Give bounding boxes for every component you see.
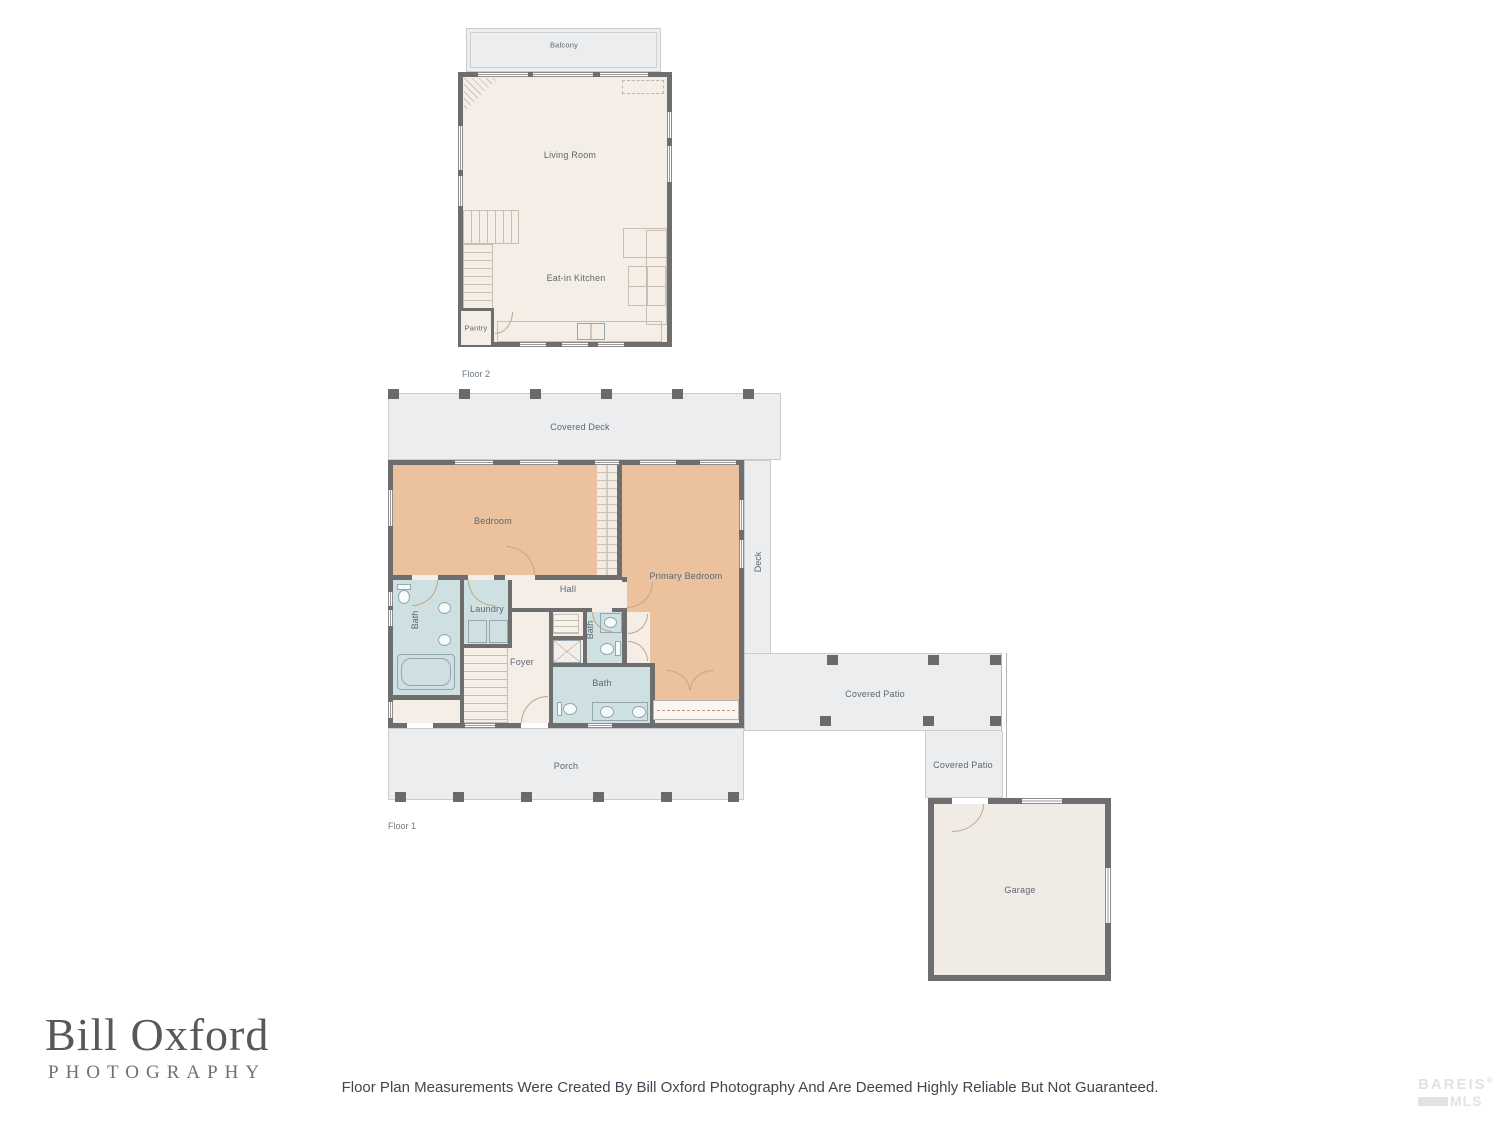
closet-x-icon	[553, 640, 581, 663]
disclaimer-text: Floor Plan Measurements Were Created By …	[0, 1079, 1500, 1096]
post	[388, 389, 399, 399]
window	[520, 460, 558, 465]
primary-bedroom-area	[650, 645, 739, 700]
window	[1022, 798, 1062, 804]
room-label-bath-main: Bath	[592, 678, 611, 688]
post	[923, 716, 934, 726]
window	[739, 500, 744, 530]
post	[820, 716, 831, 726]
window	[388, 702, 393, 718]
closet-rod	[657, 710, 735, 711]
post	[459, 389, 470, 399]
room-label-bedroom: Bedroom	[474, 516, 512, 526]
room-label-hall: Hall	[560, 584, 576, 594]
mls-logo-line1: BAREIS®	[1418, 1077, 1495, 1092]
mls-logo-mls-text: MLS	[1450, 1094, 1483, 1108]
room-label-bath-small: Bath	[585, 621, 595, 640]
room-label-garage: Garage	[1004, 885, 1035, 895]
room-label-porch: Porch	[554, 761, 579, 771]
window	[388, 592, 393, 606]
closet-strip	[653, 700, 739, 720]
stove-icon	[628, 266, 666, 306]
sliding-door	[595, 460, 619, 465]
room-label-covered-patio-lower: Covered Patio	[933, 760, 993, 770]
mls-logo-line2: MLS	[1418, 1094, 1495, 1108]
wall	[393, 695, 460, 700]
photographer-logo-name: Bill Oxford	[45, 1008, 269, 1061]
floor1-label: Floor 1	[388, 821, 416, 831]
mls-registered-mark: ®	[1487, 1076, 1495, 1085]
foyer-staircase	[464, 648, 508, 723]
wall	[508, 580, 512, 644]
window	[667, 146, 672, 182]
window	[739, 540, 744, 568]
window	[700, 460, 736, 465]
primary-bedroom-area	[622, 465, 739, 577]
room-label-pantry: Pantry	[465, 324, 488, 333]
staircase-corridor	[597, 465, 617, 577]
washer-icon	[468, 620, 487, 643]
bareis-mls-logo: BAREIS® MLS	[1418, 1077, 1495, 1108]
window	[598, 342, 624, 347]
dryer-icon	[489, 620, 508, 643]
sink-icon	[438, 634, 451, 646]
room-label-balcony: Balcony	[550, 41, 578, 50]
ceiling-feature-dashed	[622, 80, 664, 94]
sink-icon	[632, 706, 646, 718]
post	[990, 716, 1001, 726]
room-label-deck: Deck	[753, 552, 763, 573]
toilet-icon	[557, 702, 562, 716]
refrigerator-icon	[623, 228, 667, 258]
floorplan-canvas: Balcony Living Room Eat-in Kitchen Pantr…	[0, 0, 1500, 1125]
sliding-door	[533, 72, 593, 77]
window	[600, 72, 648, 77]
room-label-foyer: Foyer	[510, 657, 534, 667]
window	[562, 342, 588, 347]
post	[728, 792, 739, 802]
toilet-icon	[615, 641, 621, 656]
toilet-icon	[600, 643, 614, 655]
window	[1105, 868, 1111, 923]
sink-icon	[604, 617, 617, 628]
window	[388, 490, 393, 526]
bathtub-inner	[401, 658, 451, 686]
toilet-icon	[398, 590, 410, 604]
sink-icon	[600, 706, 614, 718]
post	[453, 792, 464, 802]
room-label-eat-in-kitchen: Eat-in Kitchen	[547, 273, 606, 283]
kitchen-sink-icon	[577, 323, 605, 340]
post	[928, 655, 939, 665]
window	[667, 112, 672, 138]
staircase-upper-run	[463, 210, 519, 244]
door-opening	[505, 575, 535, 580]
window	[478, 72, 528, 77]
mls-logo-bareis-text: BAREIS	[1418, 1076, 1487, 1093]
bathtub-icon	[397, 654, 455, 690]
post	[601, 389, 612, 399]
post	[661, 792, 672, 802]
post	[395, 792, 406, 802]
window	[458, 126, 463, 170]
window	[520, 342, 546, 347]
window	[388, 610, 393, 626]
sink-icon	[438, 602, 451, 614]
balcony-inner-line	[470, 32, 657, 68]
window	[458, 176, 463, 206]
post	[593, 792, 604, 802]
window	[640, 460, 676, 465]
window	[455, 460, 493, 465]
post	[990, 655, 1001, 665]
room-label-laundry: Laundry	[470, 604, 504, 614]
post	[672, 389, 683, 399]
floor2-label: Floor 2	[462, 369, 490, 379]
room-label-covered-patio-upper: Covered Patio	[845, 689, 905, 699]
mls-logo-bar	[1418, 1097, 1448, 1106]
room-label-living-room: Living Room	[544, 150, 596, 160]
post	[743, 389, 754, 399]
post	[521, 792, 532, 802]
post	[530, 389, 541, 399]
room-label-covered-deck: Covered Deck	[550, 422, 609, 432]
room-label-bath-left: Bath	[410, 611, 420, 630]
wall	[553, 663, 650, 667]
toilet-icon	[563, 703, 577, 715]
post	[827, 655, 838, 665]
linen-shelves	[553, 614, 579, 634]
room-label-primary-bedroom: Primary Bedroom	[649, 571, 722, 581]
balcony-area	[466, 28, 661, 72]
